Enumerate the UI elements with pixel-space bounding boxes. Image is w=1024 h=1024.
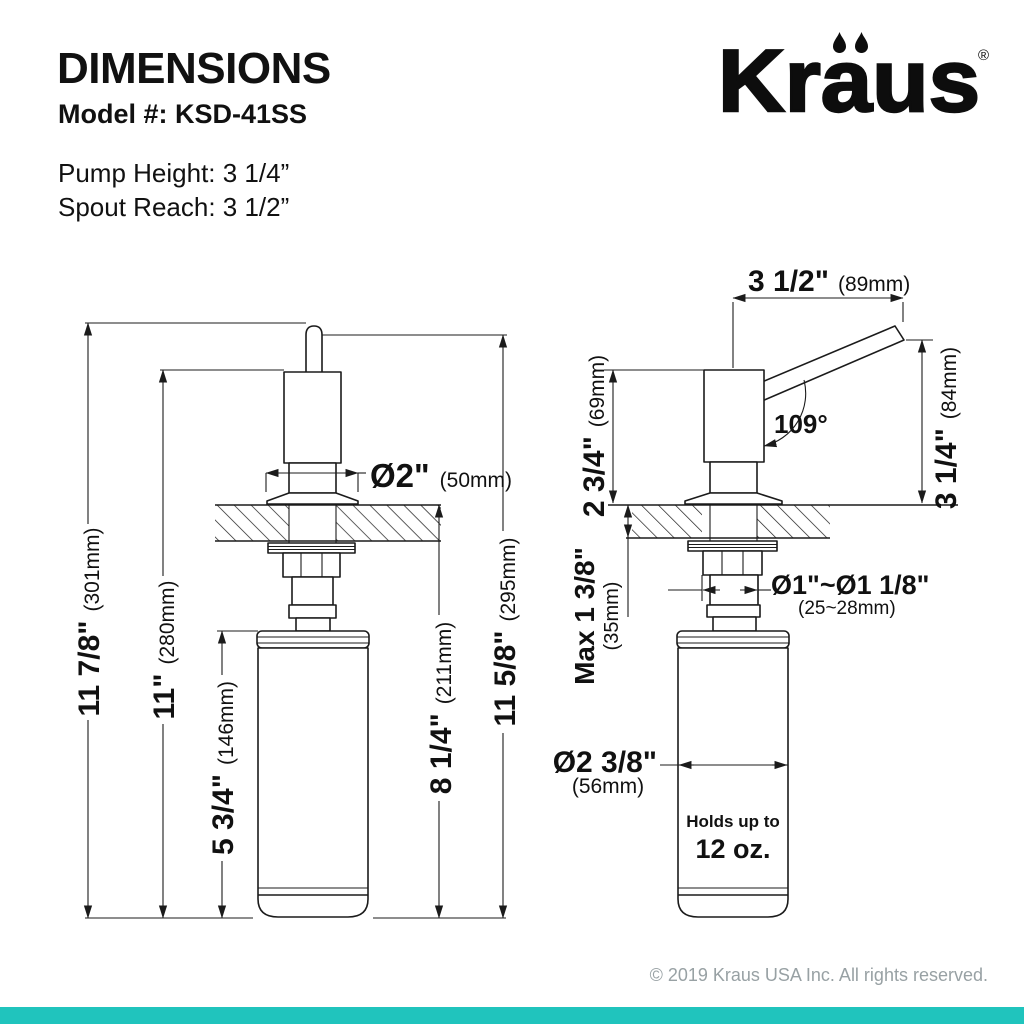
pump-body xyxy=(284,372,341,463)
capacity-label: Holds up to xyxy=(686,812,779,831)
spout-reach-label: 3 1/2"(89mm) xyxy=(748,265,910,298)
accent-bottom-bar xyxy=(0,1007,1024,1024)
countertop-hatch xyxy=(608,505,958,538)
shaft-tube xyxy=(296,618,330,631)
kraus-logo-text: Kraus xyxy=(718,31,980,120)
svg-text:Max 1 3/8": Max 1 3/8" xyxy=(569,547,600,685)
capacity-value: 12 oz. xyxy=(695,834,770,864)
svg-text:(35mm): (35mm) xyxy=(601,582,623,651)
pump-height-spec: Pump Height: 3 1/4” xyxy=(58,158,289,189)
mounting-flange xyxy=(685,493,782,504)
spout-reach-spec: Spout Reach: 3 1/2” xyxy=(58,192,289,223)
dimension-drawings: 11 7/8"(301mm) 11"(280mm) 5 3/4"(146mm) … xyxy=(0,250,1024,950)
svg-text:3 1/4"(84mm): 3 1/4"(84mm) xyxy=(930,347,963,509)
soap-bottle xyxy=(257,631,369,917)
svg-text:2 3/4"(69mm): 2 3/4"(69mm) xyxy=(578,355,611,517)
hole-diameter-label: Ø1"~Ø1 1/8" xyxy=(771,570,929,600)
shaft-collar xyxy=(707,605,760,617)
pump-neck xyxy=(289,463,336,493)
angled-spout xyxy=(750,326,904,401)
mounting-nut xyxy=(703,551,762,575)
shaft-collar xyxy=(289,605,336,618)
front-view: 11 7/8"(301mm) 11"(280mm) 5 3/4"(146mm) … xyxy=(70,323,522,918)
flange-diameter-label: Ø2"(50mm) xyxy=(370,457,512,494)
registered-trademark: ® xyxy=(978,47,989,64)
pump-spout-tube xyxy=(306,326,322,373)
bottle-diameter-mm: (56mm) xyxy=(572,775,644,798)
model-number: Model #: KSD-41SS xyxy=(58,99,307,130)
mounting-nut xyxy=(283,553,340,577)
threaded-shaft xyxy=(292,577,333,605)
kraus-logo: Kraus ® xyxy=(712,28,1002,120)
spout-angle-label: 109° xyxy=(774,409,828,439)
copyright-text: © 2019 Kraus USA Inc. All rights reserve… xyxy=(650,965,988,986)
locking-ring xyxy=(688,541,777,551)
shaft-tube xyxy=(713,617,756,631)
locking-ring xyxy=(268,543,355,553)
page-title: DIMENSIONS xyxy=(57,44,331,94)
counter-thickness-label: Max 1 3/8" xyxy=(569,547,600,685)
spout-height-label: 3 1/4"(84mm) xyxy=(930,347,963,509)
soap-bottle xyxy=(677,631,789,917)
above-counter-label: 2 3/4"(69mm) xyxy=(578,355,611,517)
countertop-hatch xyxy=(215,505,441,541)
pump-body xyxy=(704,370,764,462)
mounting-flange xyxy=(267,493,358,504)
counter-thickness-mm: (35mm) xyxy=(601,582,623,651)
side-view: 3 1/2"(89mm) 109° 2 3/4"(69mm) 3 1/4"(84… xyxy=(553,265,963,917)
pump-neck xyxy=(710,462,757,493)
hole-diameter-mm: (25~28mm) xyxy=(798,598,896,619)
